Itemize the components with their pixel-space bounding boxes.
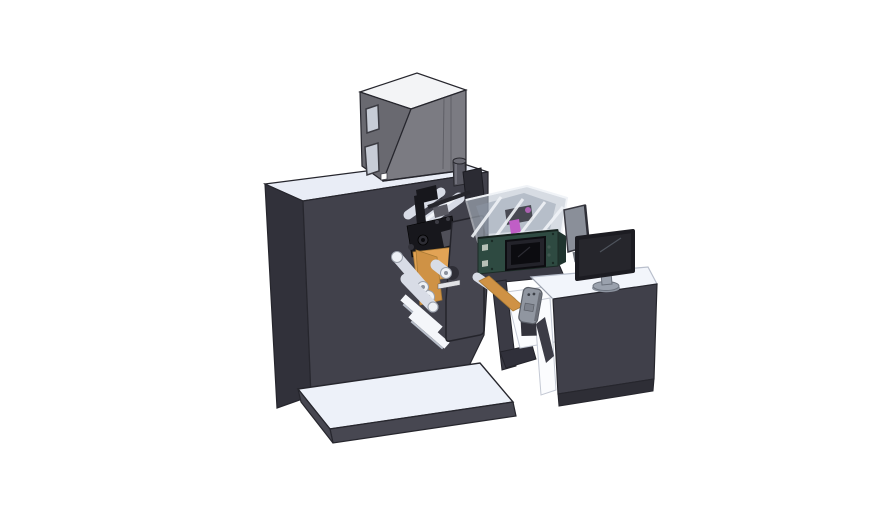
head-bolt xyxy=(435,220,439,224)
head-roller-pin xyxy=(408,244,414,250)
ink-magenta xyxy=(509,219,521,234)
desk-front-face xyxy=(553,284,657,394)
control-display xyxy=(506,237,545,270)
machine-render xyxy=(0,0,888,522)
extractor-window xyxy=(366,105,379,133)
press-screw xyxy=(552,233,554,235)
press-right-face xyxy=(558,231,566,266)
ink-magenta-dot xyxy=(525,207,531,213)
display-screen xyxy=(511,242,540,265)
press-port xyxy=(482,244,488,251)
pipe-top xyxy=(453,158,466,164)
monitor-screen xyxy=(577,231,633,279)
press-screw xyxy=(491,240,493,242)
fume-extractor-box xyxy=(360,73,466,181)
press-screw xyxy=(491,268,493,270)
indicator-square xyxy=(381,173,387,180)
press-port xyxy=(482,260,488,267)
press-screw xyxy=(552,262,554,264)
roller-end-cap xyxy=(392,252,403,263)
press-button xyxy=(547,253,550,256)
cad-render-canvas xyxy=(0,0,888,522)
roller-end-cap xyxy=(428,302,438,312)
pendant-screen xyxy=(524,303,534,311)
extractor-window xyxy=(365,143,379,175)
head-knob-center xyxy=(421,238,425,242)
press-button xyxy=(547,245,550,248)
head-bolt xyxy=(446,217,450,221)
mandrel-end-hole xyxy=(444,271,448,275)
